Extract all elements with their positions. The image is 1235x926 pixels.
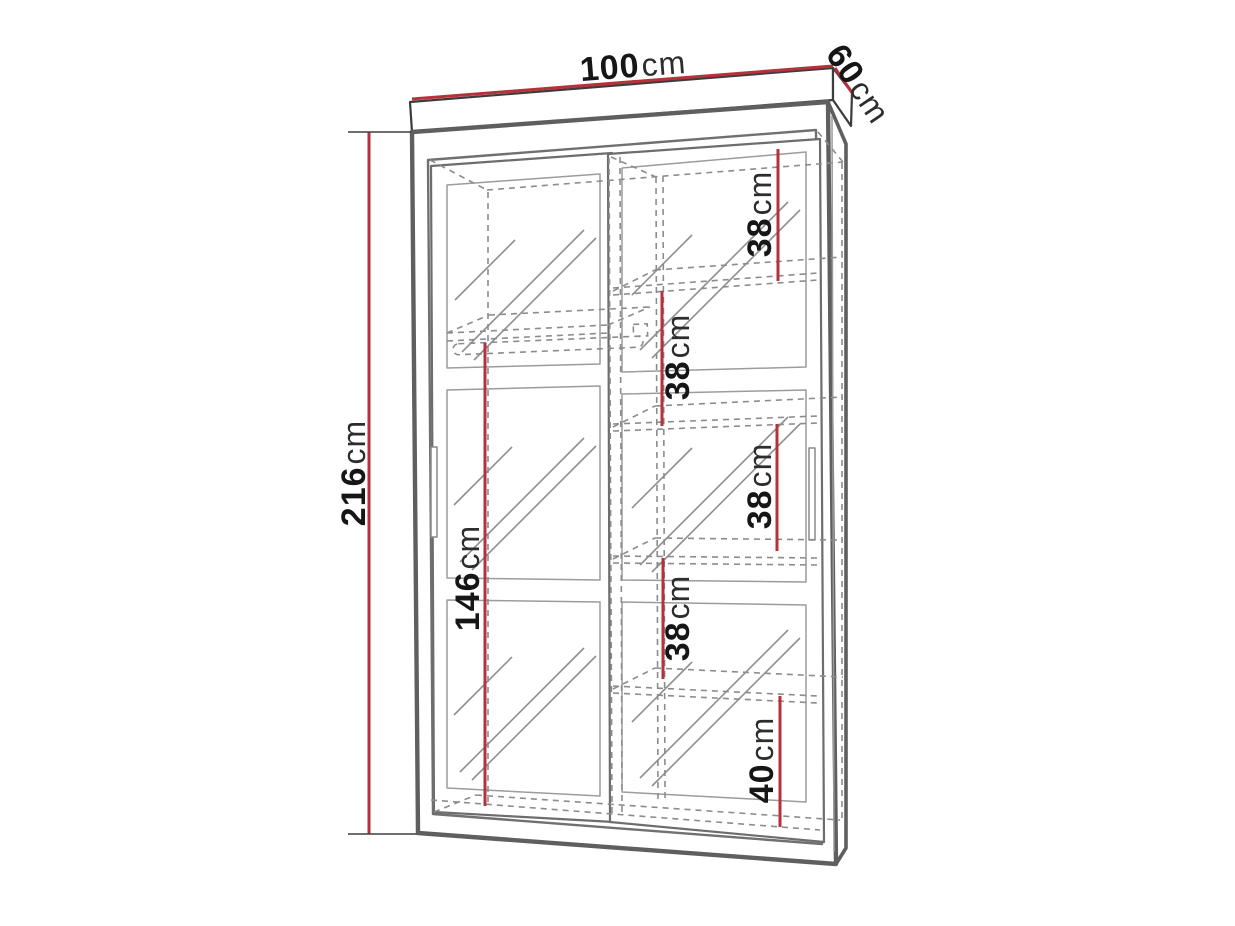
height-unit: cm xyxy=(336,420,372,465)
left-door-handle xyxy=(431,447,437,537)
interior-left-unit: cm xyxy=(450,525,486,570)
dimension-label-height: 216cm xyxy=(337,420,371,526)
dimension-label-shelf-top: 38cm xyxy=(743,171,777,257)
shelf-upper-unit: cm xyxy=(660,314,696,359)
dimension-label-interior-left: 146cm xyxy=(451,525,485,631)
shelf-middle-unit: cm xyxy=(742,443,778,488)
shelf-bottom-value: 40 xyxy=(743,763,781,803)
left-sliding-door xyxy=(431,153,614,822)
interior-left-value: 146 xyxy=(449,571,487,631)
shelf-top-value: 38 xyxy=(741,217,779,257)
dimension-label-width: 100cm xyxy=(579,45,688,87)
shelf-middle-value: 38 xyxy=(741,489,779,529)
wardrobe-line-drawing xyxy=(0,0,1235,926)
width-value: 100 xyxy=(578,47,641,90)
dimension-label-shelf-upper: 38cm xyxy=(661,314,695,400)
dimension-label-shelf-middle: 38cm xyxy=(743,443,777,529)
right-sliding-door xyxy=(608,139,824,842)
height-value: 216 xyxy=(335,466,373,526)
wardrobe-dimension-diagram: 100cm 60cm 216cm 146cm 38cm 38cm 38cm 38… xyxy=(0,0,1235,926)
width-unit: cm xyxy=(640,44,687,83)
shelf-upper-value: 38 xyxy=(659,360,697,400)
shelf-bottom-unit: cm xyxy=(744,717,780,762)
right-door-handle xyxy=(809,448,815,540)
shelf-top-unit: cm xyxy=(742,171,778,216)
shelf-lower-unit: cm xyxy=(660,575,696,620)
shelf-lower-value: 38 xyxy=(659,621,697,661)
dimension-label-shelf-lower: 38cm xyxy=(661,575,695,661)
dimension-label-shelf-bottom: 40cm xyxy=(745,717,779,803)
